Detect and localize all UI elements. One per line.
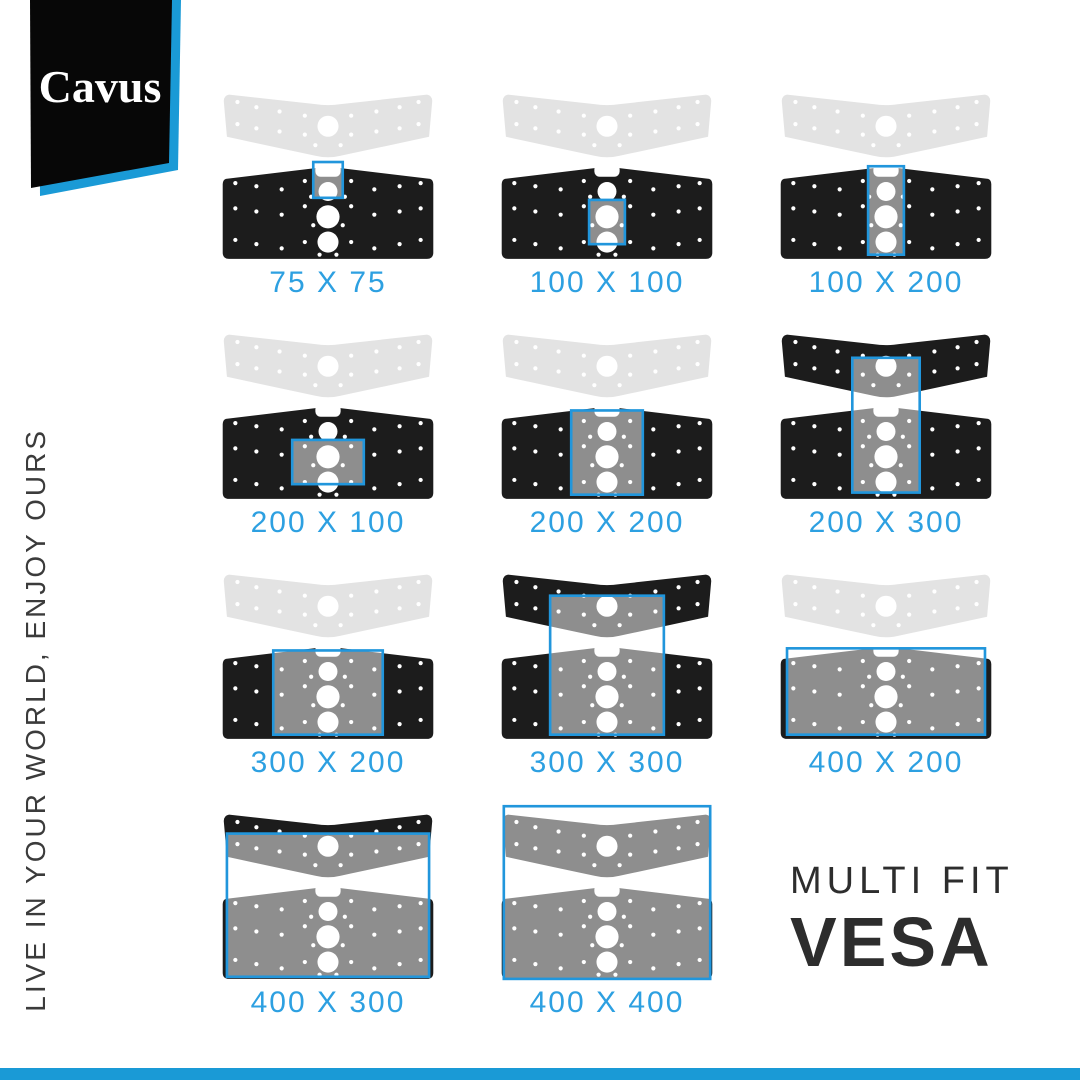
vesa-tile-400x400: 400 X 400 xyxy=(491,802,723,1022)
vesa-size-label: 200 X 100 xyxy=(251,504,406,542)
vesa-highlight-rect xyxy=(868,166,904,254)
vesa-plate-illustration-200x200 xyxy=(491,322,723,501)
vesa-plate-illustration-400x300 xyxy=(212,802,444,981)
logo-wordmark: Cavus xyxy=(39,61,162,112)
vesa-size-label: 400 X 300 xyxy=(251,984,406,1022)
vesa-highlight-rect xyxy=(273,650,383,734)
vesa-highlight-rect xyxy=(313,162,342,198)
vesa-plate-illustration-100x200 xyxy=(770,82,1002,261)
vesa-plate-illustration-100x100 xyxy=(491,82,723,261)
vesa-highlight-rect xyxy=(852,358,919,493)
vesa-size-label: 75 X 75 xyxy=(269,264,386,302)
top-plate xyxy=(503,95,711,158)
top-plate xyxy=(224,95,432,158)
vesa-plate-illustration-200x100 xyxy=(212,322,444,501)
cavus-logo: Cavus xyxy=(28,0,192,205)
vesa-size-label: 100 X 200 xyxy=(809,264,964,302)
top-plate xyxy=(224,575,432,638)
vesa-highlight-rect xyxy=(550,596,664,735)
vesa-size-label: 200 X 200 xyxy=(530,504,685,542)
vesa-tile-400x200: 400 X 200 xyxy=(770,562,1002,782)
vesa-tile-200x200: 200 X 200 xyxy=(491,322,723,542)
vesa-tile-200x300: 200 X 300 xyxy=(770,322,1002,542)
vesa-plate-illustration-400x400 xyxy=(491,802,723,981)
vesa-size-label: 300 X 300 xyxy=(530,744,685,782)
vesa-tile-75x75: 75 X 75 xyxy=(212,82,444,302)
top-plate xyxy=(503,335,711,398)
vesa-tile-100x200: 100 X 200 xyxy=(770,82,1002,302)
vesa-tile-200x100: 200 X 100 xyxy=(212,322,444,542)
vertical-tagline: LIVE IN YOUR WORLD, ENJOY OURS xyxy=(20,428,52,1012)
vesa-highlight-rect xyxy=(504,806,710,979)
vesa-tile-300x300: 300 X 300 xyxy=(491,562,723,782)
vesa-plate-illustration-400x200 xyxy=(770,562,1002,741)
vesa-plate-illustration-75x75 xyxy=(212,82,444,261)
top-plate xyxy=(224,335,432,398)
vesa-highlight-rect xyxy=(787,648,985,734)
vesa-tile-400x300: 400 X 300 xyxy=(212,802,444,1022)
vesa-highlight-rect xyxy=(571,410,643,494)
vesa-plate-illustration-200x300 xyxy=(770,322,1002,501)
vesa-highlight-rect xyxy=(589,200,625,244)
poster: Cavus LIVE IN YOUR WORLD, ENJOY OURS 75 … xyxy=(0,0,1080,1080)
vesa-size-label: 400 X 200 xyxy=(809,744,964,782)
vesa-tile-100x100: 100 X 100 xyxy=(491,82,723,302)
bottom-accent-bar xyxy=(0,1068,1080,1080)
top-plate xyxy=(782,575,990,638)
vesa-size-label: 200 X 300 xyxy=(809,504,964,542)
vesa-size-label: 300 X 200 xyxy=(251,744,406,782)
vesa-size-label: 100 X 100 xyxy=(530,264,685,302)
vesa-plate-illustration-300x200 xyxy=(212,562,444,741)
title-block: MULTI FIT VESA xyxy=(790,858,1014,980)
vesa-highlight-rect xyxy=(292,440,364,484)
vesa-heading: VESA xyxy=(790,904,1014,980)
vesa-size-label: 400 X 400 xyxy=(530,984,685,1022)
multi-fit-heading: MULTI FIT xyxy=(790,858,1014,904)
vesa-tile-300x200: 300 X 200 xyxy=(212,562,444,782)
top-plate xyxy=(782,95,990,158)
vesa-plate-illustration-300x300 xyxy=(491,562,723,741)
vesa-highlight-rect xyxy=(227,834,429,977)
